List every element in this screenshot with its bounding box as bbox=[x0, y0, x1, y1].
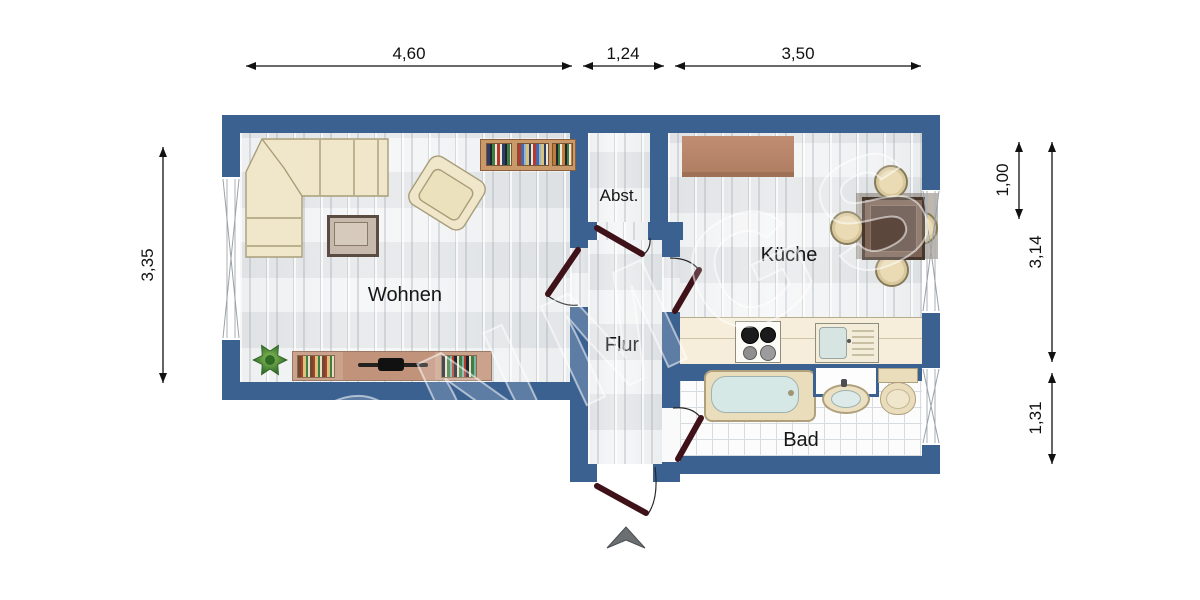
wall-flur-right-mid bbox=[662, 312, 680, 408]
dim-label-right-1: 1,00 bbox=[993, 150, 1013, 210]
bathtub bbox=[704, 370, 816, 422]
bathtub-basin bbox=[711, 376, 799, 413]
kitchen-sideboard bbox=[682, 136, 794, 177]
dining-table-top bbox=[870, 205, 917, 252]
room-label-wohnen: Wohnen bbox=[345, 284, 465, 307]
dim-label-top-1: 4,60 bbox=[379, 44, 439, 64]
drainboard bbox=[852, 328, 874, 356]
toilet-tank bbox=[878, 368, 918, 383]
room-label-kueche: Küche bbox=[729, 244, 849, 267]
dining-chair bbox=[830, 211, 864, 245]
sink-basin bbox=[819, 327, 847, 359]
room-label-flur: Flur bbox=[572, 334, 672, 357]
window-wohnen bbox=[222, 177, 240, 340]
wall-abst-bottom-right bbox=[648, 222, 683, 240]
wall-flur-bottom-left bbox=[570, 464, 597, 482]
wohnen-door-opening bbox=[570, 248, 588, 307]
books bbox=[517, 143, 549, 166]
entrance-arrow bbox=[607, 527, 645, 548]
faucet bbox=[847, 339, 851, 343]
dim-label-top-2: 1,24 bbox=[593, 44, 653, 64]
wall-abst-right bbox=[650, 133, 668, 222]
bathtub-drain bbox=[788, 390, 794, 396]
dim-label-right-2: 3,14 bbox=[1026, 222, 1046, 282]
kitchen-counter bbox=[680, 317, 922, 364]
dining-table bbox=[862, 197, 925, 260]
wall-flur-left-lower bbox=[570, 307, 588, 464]
burner bbox=[760, 327, 776, 343]
kueche-door-opening bbox=[662, 257, 680, 312]
abst-floor bbox=[588, 133, 650, 222]
wall-flur-right-upper bbox=[662, 240, 680, 257]
door-leaf-entrance bbox=[597, 486, 646, 513]
wall-wohnen-bottom bbox=[222, 382, 588, 400]
books bbox=[441, 355, 477, 378]
tv-lowboard bbox=[292, 351, 492, 381]
coffee-table bbox=[327, 215, 379, 257]
tv-console bbox=[378, 358, 404, 371]
dim-label-top-3: 3,50 bbox=[768, 44, 828, 64]
coffee-table-top bbox=[334, 222, 368, 246]
washbasin-faucet bbox=[841, 379, 847, 387]
toilet-seat bbox=[886, 389, 910, 409]
window-bad bbox=[922, 368, 940, 445]
dining-chair bbox=[874, 165, 908, 199]
kitchen-sink bbox=[815, 323, 879, 363]
washbasin-bowl bbox=[831, 390, 861, 408]
room-label-abst: Abst. bbox=[569, 186, 669, 206]
toilet-bowl bbox=[880, 382, 916, 415]
wall-bookshelf bbox=[480, 139, 576, 171]
washbasin bbox=[822, 384, 870, 414]
stove bbox=[735, 321, 781, 363]
books bbox=[486, 143, 512, 166]
dim-label-right-3: 1,31 bbox=[1026, 388, 1046, 448]
burner bbox=[743, 346, 757, 360]
books bbox=[552, 143, 573, 166]
burner bbox=[760, 345, 776, 361]
wall-flur-bottom-right bbox=[653, 464, 680, 482]
dim-label-left-1: 3,35 bbox=[138, 235, 158, 295]
room-label-bad: Bad bbox=[741, 429, 861, 452]
burner bbox=[741, 326, 759, 344]
wall-top bbox=[222, 115, 940, 133]
wall-abst-bottom-left bbox=[570, 222, 597, 240]
floorplan-canvas: Wohnen Abst. Küche Flur Bad 4,60 1,24 3,… bbox=[0, 0, 1200, 600]
books bbox=[297, 355, 335, 378]
bad-door-opening bbox=[662, 408, 680, 462]
abst-door-opening bbox=[597, 222, 648, 240]
wall-bad-bottom bbox=[662, 456, 940, 474]
counter-edge-line bbox=[680, 338, 922, 339]
